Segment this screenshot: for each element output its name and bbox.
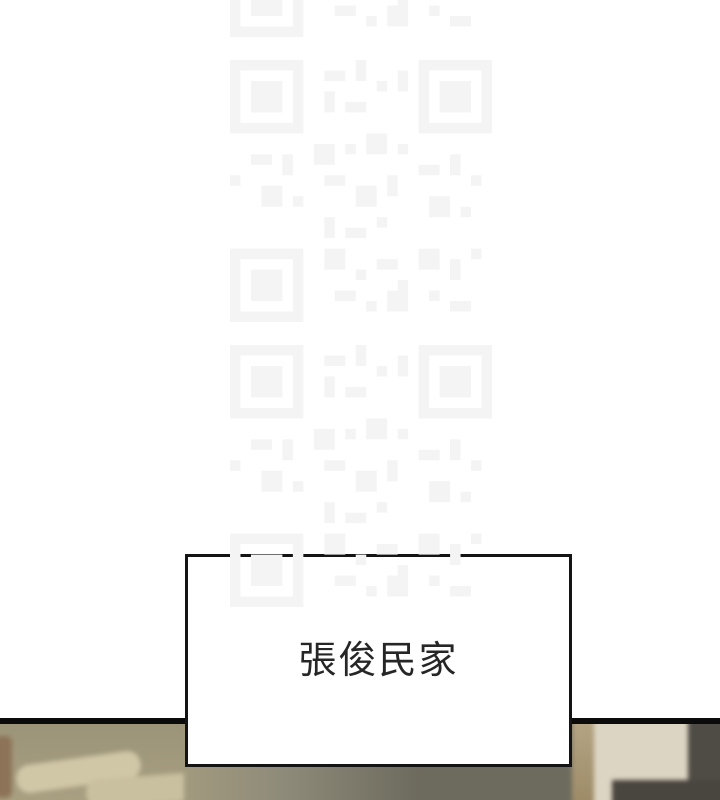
- caption-box: 張俊民家: [185, 554, 572, 767]
- caption-text: 張俊民家: [298, 642, 458, 680]
- comic-page: 張俊民家: [0, 0, 720, 800]
- wall-pillar: [572, 724, 594, 800]
- qr-watermark-icon: [230, 0, 492, 610]
- chair-seat-shape: [612, 780, 720, 800]
- bed-edge-shadow: [0, 736, 12, 798]
